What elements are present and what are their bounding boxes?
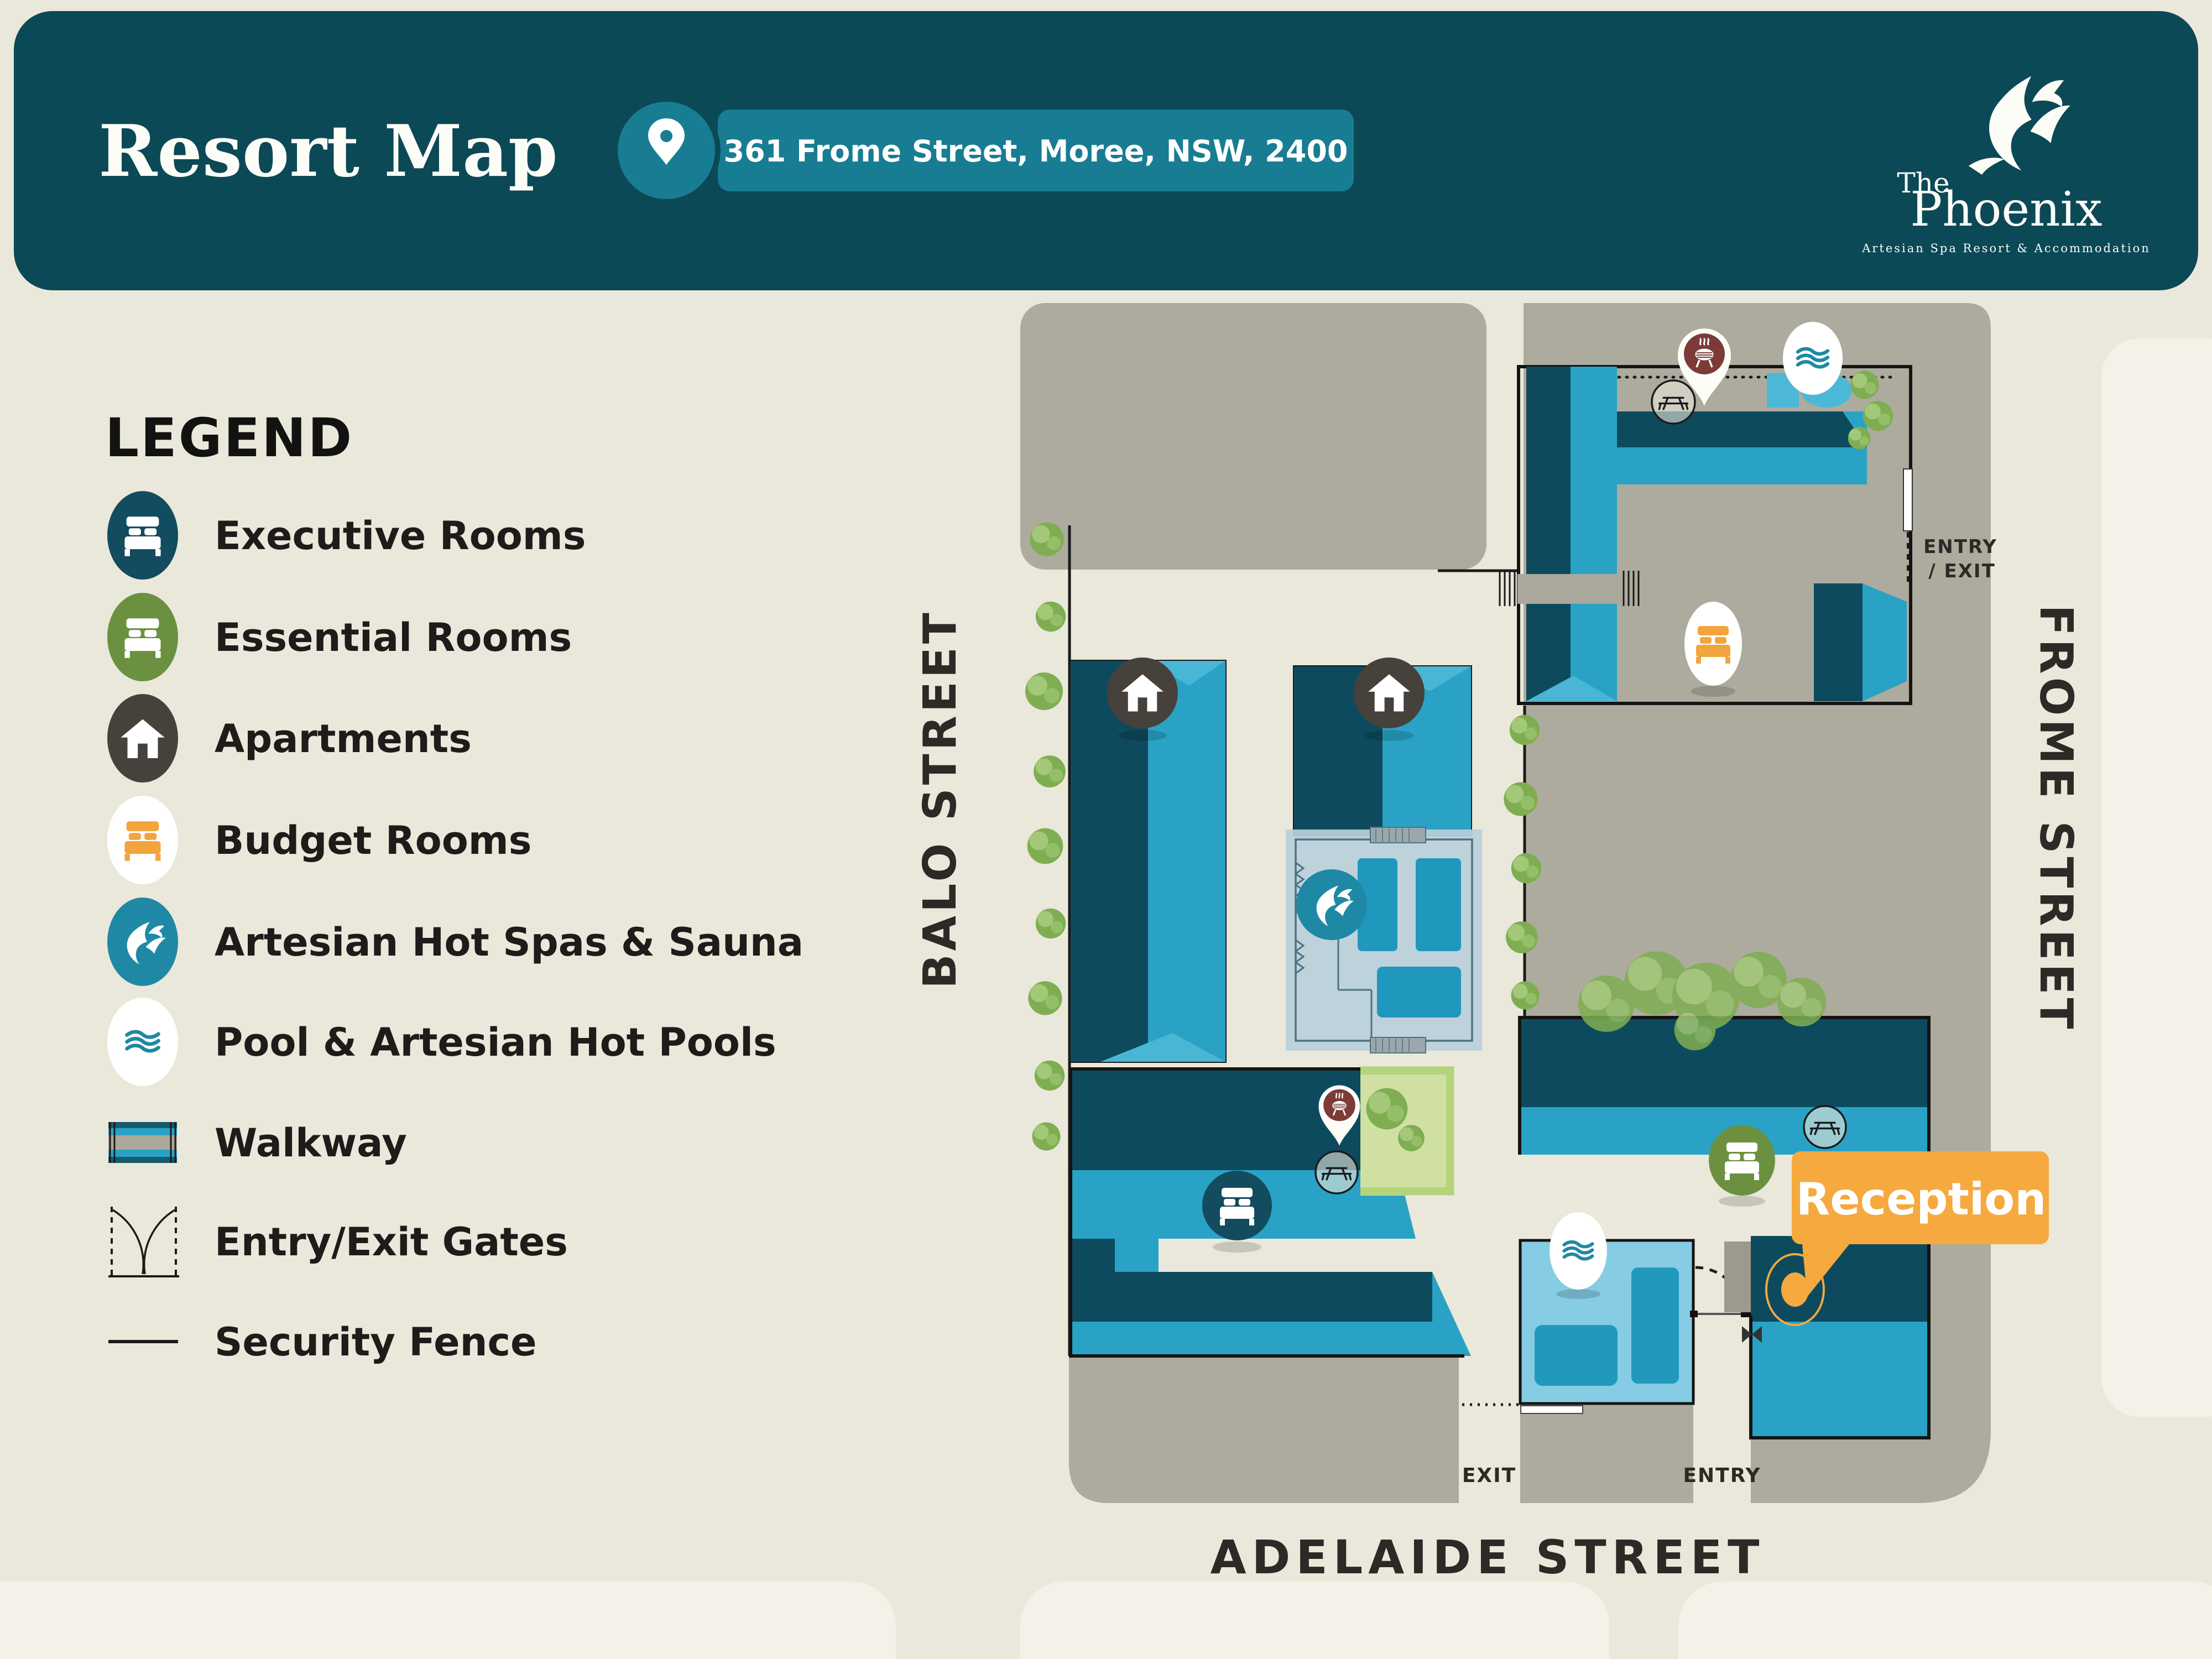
svg-text:Executive Rooms: Executive Rooms (215, 513, 586, 559)
address-badge: 361 Frome Street, Moree, NSW, 2400 (615, 99, 1354, 202)
frome-gate (1903, 469, 1912, 531)
picnic-marker-east (1804, 1106, 1846, 1148)
gate-label-entry: ENTRY (1683, 1464, 1761, 1487)
spa-sauna-marker (1296, 869, 1367, 940)
driveway-south-apron (1069, 1356, 1459, 1503)
reception-walkway (1724, 1241, 1751, 1312)
walkway-icon (108, 1122, 177, 1163)
logo-brand: Phoenix (1910, 182, 2102, 237)
svg-text:Pool & Artesian Hot Pools: Pool & Artesian Hot Pools (215, 1020, 776, 1065)
legend-item-walkway: Walkway (108, 1120, 407, 1166)
svg-text:Essential Rooms: Essential Rooms (215, 615, 572, 660)
header: Resort Map 361 Frome Street, Moree, NSW,… (14, 11, 2198, 290)
picnic-marker-central (1316, 1151, 1358, 1193)
svg-text:Walkway: Walkway (215, 1120, 407, 1166)
reception-dot (1781, 1272, 1809, 1307)
lawn-area (1360, 1066, 1454, 1196)
gate-label-frome-2: / EXIT (1928, 560, 1996, 582)
pool-area-south (1520, 1240, 1693, 1404)
street-label-adelaide: ADELAIDE STREET (1211, 1530, 1765, 1584)
gate-label-frome-1: ENTRY (1923, 536, 1997, 558)
parking-area-northwest (1020, 303, 1486, 570)
pool-marker-north (1783, 322, 1843, 395)
svg-text:Security Fence: Security Fence (215, 1319, 536, 1365)
gate-label-exit: EXIT (1462, 1464, 1516, 1487)
walkway-crossing (1500, 571, 1639, 606)
svg-text:Apartments: Apartments (215, 716, 472, 761)
driveway-under-pool (1520, 1404, 1693, 1503)
svg-text:Entry/Exit Gates: Entry/Exit Gates (215, 1219, 568, 1265)
street-label-frome: FROME STREET (2030, 604, 2082, 1032)
svg-text:Artesian Hot Spas & Sauna: Artesian Hot Spas & Sauna (215, 920, 804, 965)
legend-title: LEGEND (105, 407, 353, 469)
address-text: 361 Frome Street, Moree, NSW, 2400 (724, 134, 1348, 169)
page-title: Resort Map (98, 110, 558, 193)
picnic-marker-north (1652, 380, 1695, 424)
svg-text:Budget Rooms: Budget Rooms (215, 818, 531, 863)
logo-tagline: Artesian Spa Resort & Accommodation (1861, 242, 2151, 255)
spa-sauna-floorplan (1286, 827, 1482, 1053)
street-label-balo: BALO STREET (914, 609, 967, 989)
reception-label: Reception (1796, 1173, 2046, 1225)
